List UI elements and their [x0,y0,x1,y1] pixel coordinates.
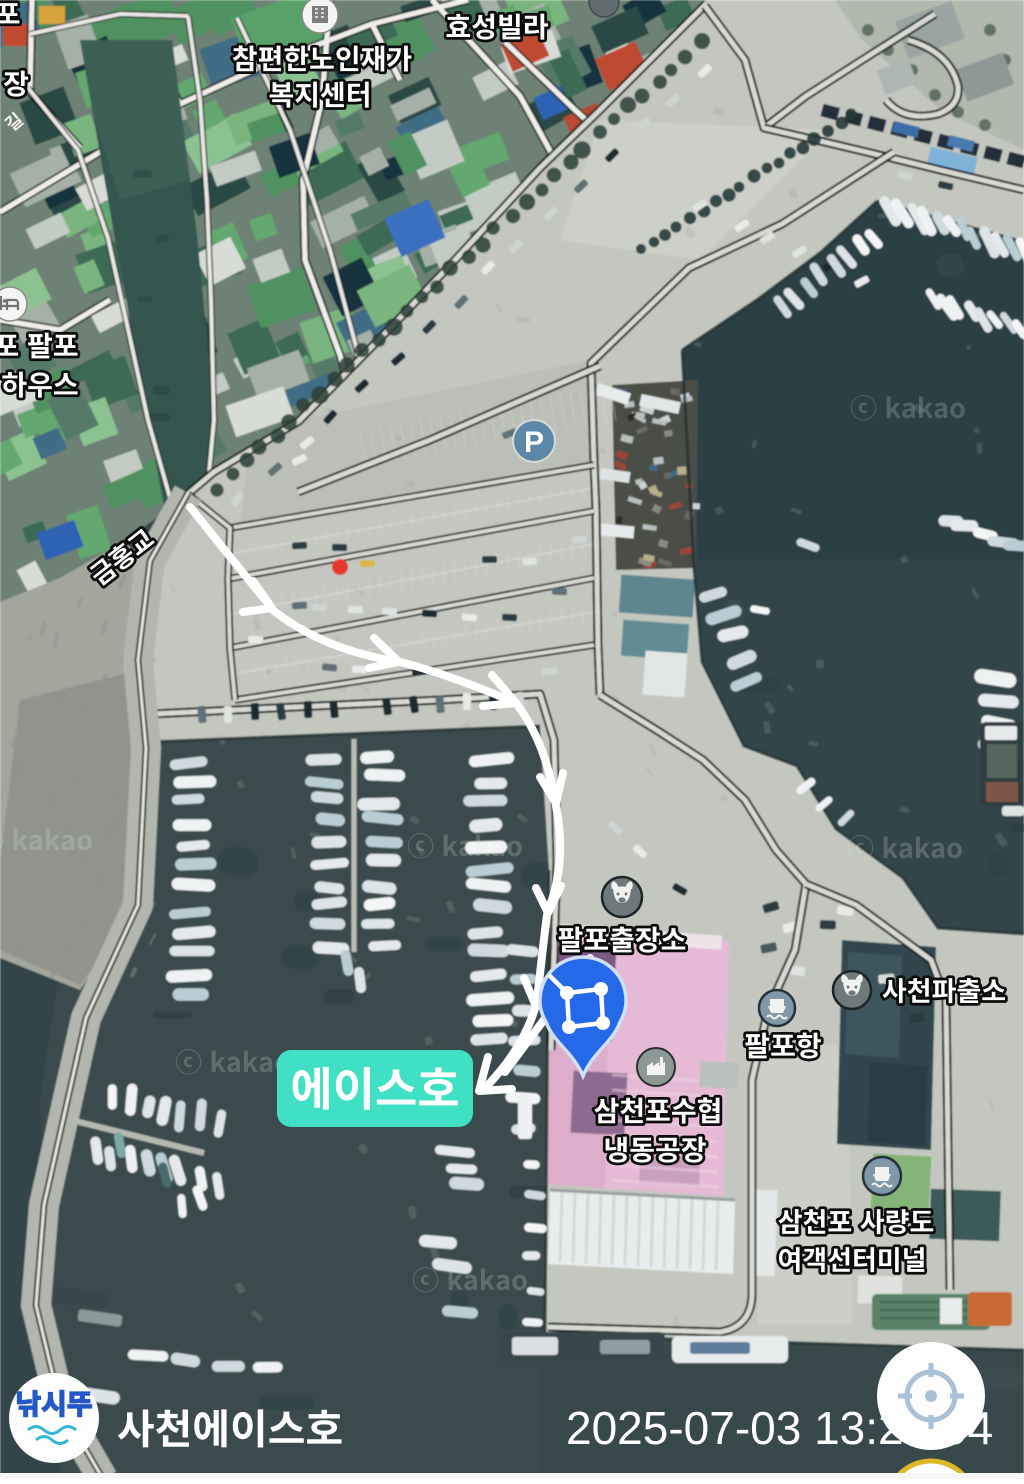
svg-text:P: P [524,426,544,459]
